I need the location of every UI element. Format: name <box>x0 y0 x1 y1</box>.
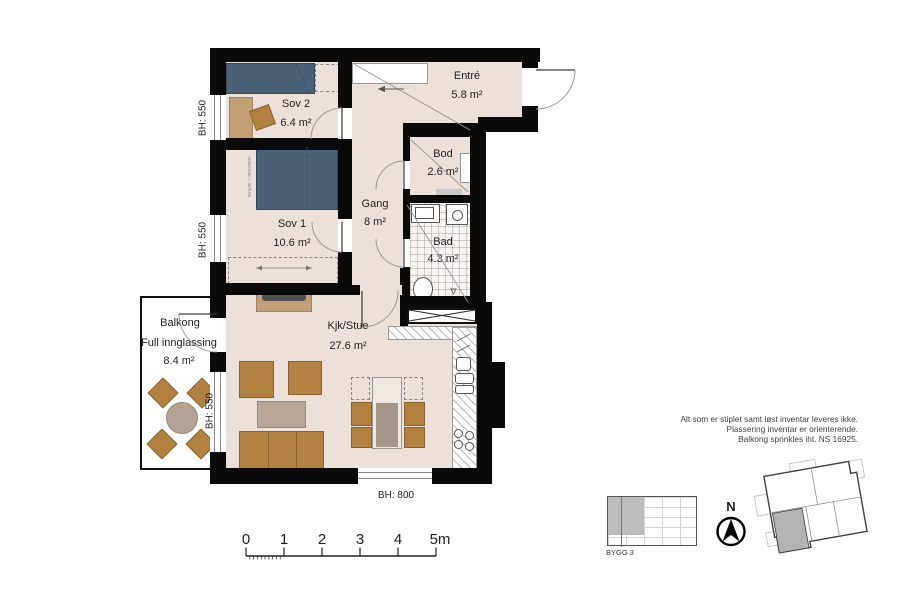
north-arrow-circle <box>718 518 745 545</box>
site-outline-fragment <box>789 459 816 473</box>
note-line: Balkong sprinkles iht. NS 16925. <box>508 434 858 444</box>
wall-bod-bad-divider <box>403 195 470 203</box>
window-sov1 <box>210 215 226 262</box>
north-arrow <box>718 518 745 545</box>
wall-living-top-stub <box>338 285 362 295</box>
wall-left <box>210 140 226 215</box>
kitchen-sink-basin-1 <box>455 373 474 384</box>
site-building-outline <box>764 460 868 553</box>
site-internal-lines <box>764 460 867 547</box>
sofa <box>239 431 324 470</box>
building-key-label: BYGG 3 <box>606 548 634 557</box>
site-outline-fragment <box>848 459 865 479</box>
site-unit-highlight <box>772 508 808 553</box>
sill-label-sov2: BH: 550 <box>198 100 209 136</box>
washing-machine <box>446 204 468 225</box>
kitchen-kettle-symbol <box>456 357 471 371</box>
dining-chair-dashed <box>404 377 423 400</box>
bed-sov2-dashed-extension <box>315 64 340 92</box>
entry-door-arc <box>536 70 575 109</box>
wall-left <box>210 352 226 372</box>
tv <box>262 294 306 301</box>
note-line: Alt som er stiplet samt løst inventar le… <box>508 414 858 424</box>
north-label: N <box>726 501 735 513</box>
door-opening-bad <box>403 239 410 267</box>
entry-closet <box>352 63 428 84</box>
site-faint-outlines <box>750 451 874 547</box>
sill-label-stue: BH: 800 <box>378 490 414 502</box>
wall-left <box>210 262 226 318</box>
sink-basin <box>415 207 434 219</box>
sill-label-balkong: BH: 550 <box>205 393 216 429</box>
site-key-plan <box>750 451 875 555</box>
room-label-balkong: Balkong <box>160 317 200 329</box>
room-label-kjk-stue: Kjk/Stue <box>328 320 369 332</box>
coffee-table <box>257 401 306 428</box>
wall-sov1-gang <box>338 139 352 219</box>
sill-label-sov1: BH: 550 <box>198 222 209 258</box>
site-internal-line <box>770 497 861 513</box>
door-opening-living <box>360 285 402 295</box>
room-area-bod: 2.6 m² <box>427 166 458 178</box>
room-label-bod: Bod <box>433 148 453 160</box>
room-subtitle-balkong: Full innglassing <box>141 337 217 349</box>
site-internal-line <box>811 468 817 504</box>
scale-tick-label: 4 <box>394 531 402 548</box>
wall-bod-bad-right <box>470 131 486 307</box>
window-sov2 <box>210 95 226 140</box>
scale-minor-ticks <box>250 556 280 560</box>
door-opening-entry <box>522 68 538 106</box>
north-arrow-pointer <box>723 519 740 542</box>
room-label-sov1: Sov 1 <box>278 218 306 230</box>
wall-left <box>210 62 226 95</box>
bed-sov1 <box>256 145 338 210</box>
scale-bar <box>246 548 436 560</box>
cooktop-burner <box>465 431 474 440</box>
room-area-entre: 5.8 m² <box>451 89 482 101</box>
bed-size-annotation: Seng bk. = 160x200cm <box>247 156 252 197</box>
room-label-entre: Entré <box>454 70 480 82</box>
wall-sov1-living <box>226 283 338 295</box>
room-area-bad: 4.3 m² <box>427 253 458 265</box>
wall-bottom <box>210 468 360 484</box>
scale-tick-label: 0 <box>242 531 250 548</box>
floor-plan-canvas: Seng bk. = 160x200cm <box>0 0 900 600</box>
wall-bad-bottom <box>403 296 477 308</box>
wall-entre-bottom <box>478 117 538 132</box>
washing-machine-drum <box>452 210 463 221</box>
window-stue-bottom <box>358 468 432 484</box>
bathroom-sink <box>411 204 440 223</box>
bed-sov2 <box>226 63 315 94</box>
technical-shaft <box>407 308 477 324</box>
sofa-seat-divider <box>296 432 297 469</box>
room-label-bad: Bad <box>433 236 453 248</box>
room-area-sov2: 6.4 m² <box>280 117 311 129</box>
dining-table-runner <box>376 403 398 447</box>
sofa-seat-divider <box>268 432 269 469</box>
room-area-kjk-stue: 27.6 m² <box>329 340 366 352</box>
building-key-divider <box>621 497 622 547</box>
door-opening-sov2 <box>338 108 352 139</box>
room-area-balkong: 8.4 m² <box>163 355 194 367</box>
site-outline-fragment <box>766 531 779 547</box>
balcony-round-table <box>166 402 198 434</box>
wall-sov2-sov1 <box>226 138 338 150</box>
disclaimer-notes: Alt som er stiplet samt løst inventar le… <box>508 414 858 444</box>
wall-sov2-gang <box>338 62 352 108</box>
wall-entry-right <box>522 48 538 68</box>
scale-tick-label: 2 <box>318 531 326 548</box>
scale-tick-label: 3 <box>356 531 364 548</box>
kitchen-sink-basin-2 <box>455 385 474 394</box>
room-area-sov1: 10.6 m² <box>273 237 310 249</box>
armchair-1 <box>239 361 274 398</box>
dining-chair <box>404 402 425 426</box>
wall-right-bump <box>492 362 505 428</box>
dining-chair <box>351 427 372 448</box>
room-label-sov2: Sov 2 <box>282 98 310 110</box>
cooktop-burner <box>454 440 463 449</box>
dining-chair-dashed <box>351 377 370 400</box>
site-outline-fragment <box>754 494 773 516</box>
scale-tick-label: 1 <box>280 531 288 548</box>
room-label-gang: Gang <box>362 198 389 210</box>
dining-chair <box>351 402 372 426</box>
site-internal-line <box>833 502 839 536</box>
wardrobe-sov1-dashed <box>228 257 338 284</box>
cooktop-burner <box>465 442 474 451</box>
door-opening-sov1 <box>338 219 352 252</box>
cooktop-burner <box>454 429 463 438</box>
door-opening-bod <box>403 161 410 189</box>
wall-gang-bod <box>403 131 410 161</box>
wall-right-living <box>477 302 492 482</box>
dining-chair <box>404 427 425 448</box>
wall-gang-bad <box>403 203 410 239</box>
scale-tick-label: 5m <box>430 531 451 548</box>
building-key-grid <box>607 496 697 546</box>
armchair-2 <box>288 361 322 395</box>
site-internal-line <box>806 507 812 541</box>
scale-major-ticks <box>246 548 436 557</box>
room-area-gang: 8 m² <box>364 216 386 228</box>
building-key-highlight <box>608 497 644 535</box>
wall-top <box>210 48 540 62</box>
note-line: Plassering inventar er orienterende. <box>508 424 858 434</box>
